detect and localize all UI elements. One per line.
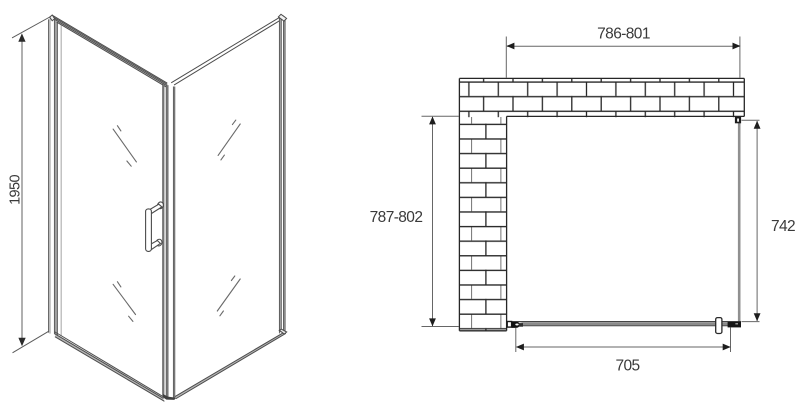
- svg-text:787-802: 787-802: [370, 209, 423, 226]
- svg-text:786-801: 786-801: [597, 25, 650, 42]
- svg-text:705: 705: [615, 358, 639, 375]
- svg-text:742: 742: [771, 218, 795, 235]
- svg-text:1950: 1950: [7, 175, 23, 205]
